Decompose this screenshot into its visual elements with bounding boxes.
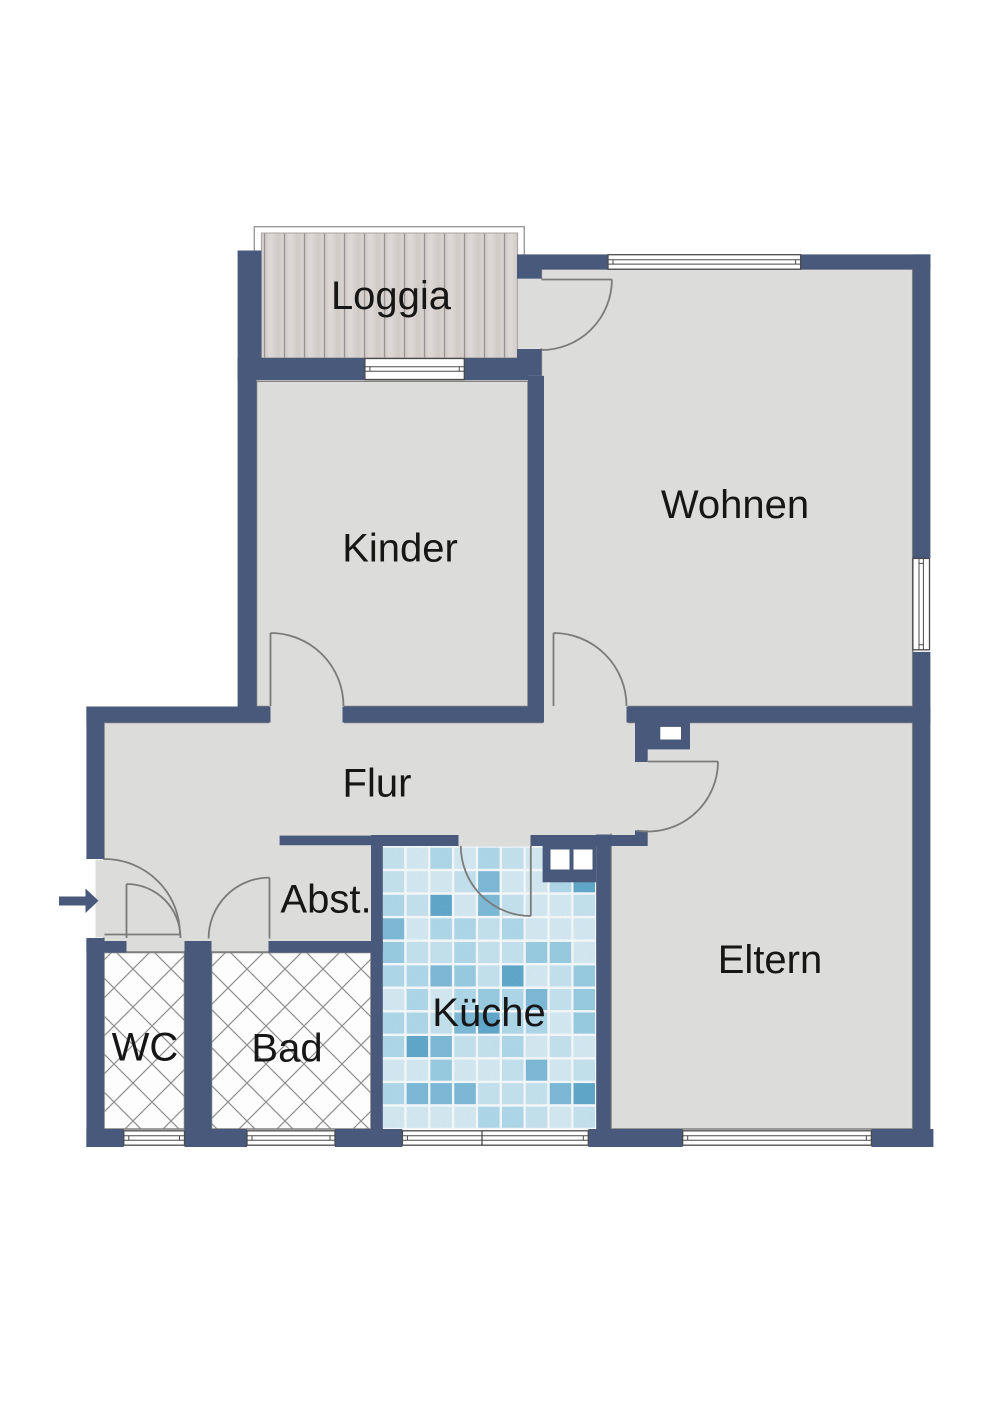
svg-text:Bad: Bad bbox=[251, 1027, 322, 1071]
svg-text:Wohnen: Wohnen bbox=[661, 483, 809, 527]
svg-text:Kinder: Kinder bbox=[342, 527, 458, 571]
svg-text:Abst.: Abst. bbox=[280, 877, 371, 921]
svg-text:Eltern: Eltern bbox=[718, 938, 823, 982]
svg-text:Loggia: Loggia bbox=[331, 274, 452, 318]
svg-text:Küche: Küche bbox=[432, 991, 545, 1035]
svg-text:WC: WC bbox=[112, 1025, 179, 1069]
svg-text:Flur: Flur bbox=[343, 762, 412, 806]
